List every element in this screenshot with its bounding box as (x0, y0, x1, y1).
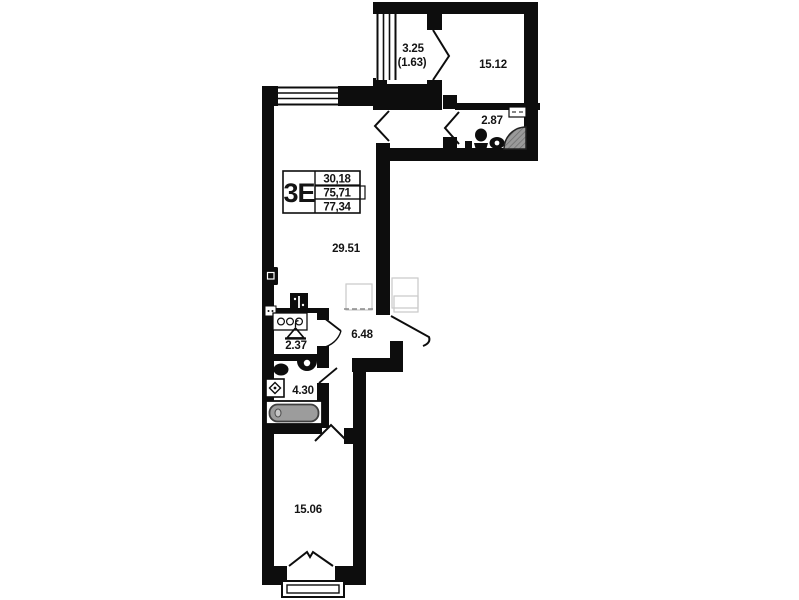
unit-info-table: 3E 30,18 75,71 77,34 (283, 171, 365, 214)
label-wc-top: 2.87 (481, 115, 503, 127)
electrical-panel-icon (263, 267, 278, 285)
label-bedroom-bottom: 15.06 (294, 504, 322, 516)
label-bedroom-top: 15.12 (479, 59, 507, 71)
bathtub-icon (266, 401, 322, 424)
label-wardrobe: 2.37 (285, 340, 307, 352)
floor-plan-drawing: 3E 30,18 75,71 77,34 3.25 (1.63) 15.12 2… (0, 0, 799, 600)
floor-plan-page: 3E 30,18 75,71 77,34 3.25 (1.63) 15.12 2… (0, 0, 799, 600)
label-living-kitchen: 29.51 (332, 243, 361, 255)
stove-icon (273, 313, 307, 330)
label-hallway: 6.48 (351, 329, 373, 341)
window-living-top (278, 86, 338, 106)
sink-icon (490, 137, 505, 149)
room-bedroom-bottom (274, 434, 353, 566)
unit-area-row-3: 77,34 (323, 202, 351, 214)
vent-shaft-icon (290, 293, 308, 311)
unit-area-row-1: 30,18 (323, 174, 351, 186)
label-balcony-reduced: (1.63) (398, 57, 427, 69)
unit-area-row-2: 75,71 (323, 188, 351, 200)
window-balcony-glazing (376, 14, 397, 80)
wall-box-icon (509, 107, 526, 117)
paper-holder-icon (465, 141, 472, 148)
window-bottom-balcony-frame (282, 581, 344, 597)
label-bathroom: 4.30 (292, 385, 314, 397)
toilet-icon (266, 363, 289, 376)
unit-type-label: 3E (283, 178, 314, 208)
washing-machine-icon (266, 379, 284, 397)
room-bedroom-top (442, 13, 524, 103)
label-balcony-area: 3.25 (402, 43, 424, 55)
opening-living-hall (375, 111, 389, 141)
